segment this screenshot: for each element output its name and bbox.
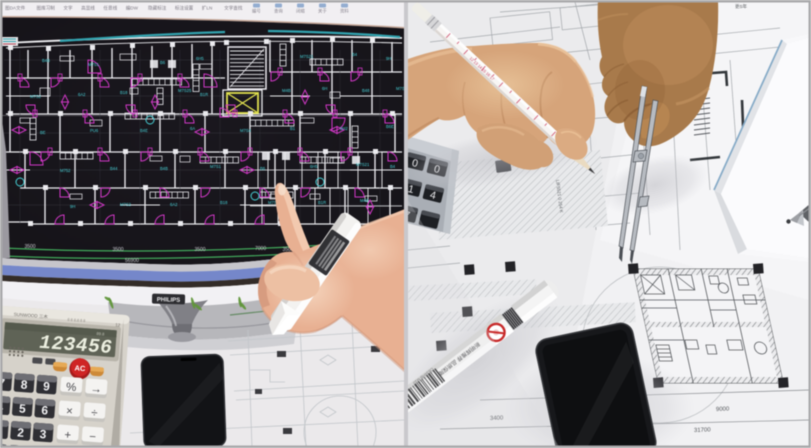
svg-text:31700: 31700 <box>694 427 712 434</box>
svg-text:9000: 9000 <box>716 407 730 413</box>
svg-text:关于: 关于 <box>318 8 327 15</box>
svg-text:PHILIPS: PHILIPS <box>157 297 180 304</box>
svg-text:→: → <box>90 383 102 396</box>
svg-text:+: + <box>64 429 72 441</box>
svg-text:6: 6 <box>41 403 49 417</box>
svg-text:AC: AC <box>74 363 86 373</box>
svg-text:89.8: 89.8 <box>96 331 105 337</box>
svg-text:编号: 编号 <box>252 8 261 15</box>
svg-text:任意线: 任意线 <box>103 5 117 12</box>
svg-text:扩LN: 扩LN <box>202 5 212 12</box>
svg-text:文字查找: 文字查找 <box>224 5 243 12</box>
svg-text:2: 2 <box>17 425 25 439</box>
svg-text:资料: 资料 <box>340 8 349 15</box>
svg-text:闭缩: 闭缩 <box>296 8 305 15</box>
svg-text:编DW: 编DW <box>126 5 139 12</box>
svg-text:3: 3 <box>39 427 47 441</box>
svg-text:文字: 文字 <box>63 5 73 12</box>
svg-text:图DA文件: 图DA文件 <box>5 5 26 12</box>
svg-text:%: % <box>66 381 77 394</box>
svg-text:5: 5 <box>18 401 26 415</box>
svg-text:图库习制: 图库习制 <box>37 5 56 12</box>
svg-text:隐藏标注: 隐藏标注 <box>148 5 167 12</box>
svg-text:9: 9 <box>43 379 51 393</box>
svg-text:标注设置: 标注设置 <box>175 5 194 12</box>
svg-text:÷: ÷ <box>91 407 98 419</box>
svg-text:×: × <box>66 405 74 417</box>
svg-text:查询: 查询 <box>274 8 283 15</box>
svg-text:8: 8 <box>20 378 28 392</box>
svg-text:高显线: 高显线 <box>81 5 95 12</box>
svg-text:−: − <box>89 431 97 443</box>
svg-text:更S年: 更S年 <box>735 3 748 10</box>
